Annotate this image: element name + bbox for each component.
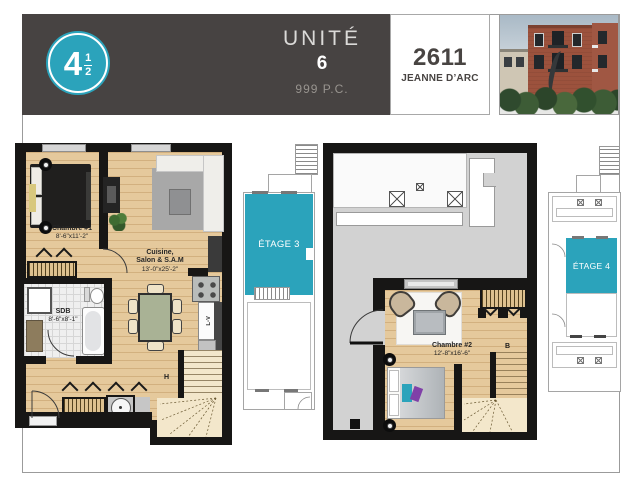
entry-step (29, 416, 57, 426)
vanity (26, 320, 43, 352)
fridge (208, 236, 222, 272)
keyplan-window-tick (572, 236, 584, 239)
ottoman (169, 189, 191, 215)
skylight-icon (577, 199, 584, 206)
dining-chair (147, 341, 164, 351)
unit-area: 999 P.C. (295, 82, 348, 96)
dining-table (138, 293, 172, 342)
bed-2-pillow (389, 394, 399, 416)
stairs-down-label: B (505, 343, 510, 350)
stair-winder (157, 398, 222, 437)
unit-type-badge: 4 1 2 (48, 33, 108, 93)
dishwasher-label: L-V (206, 316, 212, 326)
keyplan4-parapet (556, 346, 613, 355)
photo-window (598, 55, 607, 68)
plan4-wall-right (527, 143, 537, 440)
keyplan-window-tick (255, 389, 269, 392)
stairs-up (184, 350, 222, 400)
unit-label: UNITÉ (283, 27, 361, 51)
stair-wall (454, 364, 462, 432)
room-label-cuisine: Cuisine, Salon & S.A.M 13'-0"x25'-2" (120, 249, 200, 273)
photo-window (534, 55, 544, 69)
skylight-icon (447, 191, 463, 207)
closet-1 (27, 261, 77, 278)
stairs-down (496, 352, 527, 400)
keyplan3-label: ÉTAGE 3 (258, 239, 300, 250)
closet-2-wall (520, 308, 527, 318)
pot-light-icon (383, 353, 396, 366)
photo-balcony (592, 45, 598, 48)
keyplan4-lower-room (566, 293, 617, 337)
keyplan-window-tick (594, 335, 606, 338)
badge-fraction: 1 2 (84, 52, 92, 77)
balcony-sill-glass (408, 282, 454, 286)
keyplan3-highlight: ÉTAGE 3 (245, 194, 313, 295)
keyplan-window-tick (252, 191, 268, 194)
pot-light-icon (39, 158, 52, 171)
skylight-icon (595, 199, 602, 206)
sdb-bottom-wall (15, 356, 46, 364)
bed-2-pillow (389, 370, 399, 392)
keyplan4-parapet (556, 208, 613, 217)
sofa-chaise (203, 155, 224, 232)
pot-light-icon (383, 419, 396, 432)
keyplan4-highlight: ÉTAGE 4 (566, 238, 617, 293)
roof-parapet-notch (483, 173, 496, 187)
photo-bushes (500, 87, 619, 115)
window-sill (42, 144, 86, 152)
keyplan3-ext-stairs (295, 144, 318, 175)
skylight-icon (577, 357, 584, 364)
sdb-bottom-wall (76, 356, 112, 364)
photo-window (572, 55, 582, 69)
dining-chair (172, 319, 182, 334)
stairs-up-label: H (164, 374, 169, 381)
photo-balcony (548, 45, 568, 48)
unit-number: 6 (317, 53, 328, 75)
photo-window (504, 57, 512, 67)
photo-window (516, 57, 524, 67)
stair-winder (462, 398, 527, 432)
address-street: JEANNE D’ARC (401, 73, 478, 84)
keyplan3-rear-bump (284, 392, 312, 410)
badge-whole-number: 4 (64, 47, 82, 80)
keyplan-window-tick (281, 191, 297, 194)
unit-info: UNITÉ 6 999 P.C. (258, 27, 386, 96)
bed-1-throw (29, 184, 36, 212)
keyplan-window-tick (596, 236, 608, 239)
roof-parapet (469, 158, 495, 227)
keyplan3-notch (306, 248, 314, 260)
building-photo (499, 14, 619, 115)
room-label-chambre1: Chambre #1 8'-6"x11'-2" (36, 225, 108, 241)
keyplan3-lower-room (247, 302, 311, 390)
room-label-sdb: SDB 8'-6"x8'-1" (42, 308, 84, 324)
photo-window (572, 33, 582, 47)
keyplan4-ext-stairs (599, 146, 620, 175)
plan4-wall-top (323, 143, 537, 153)
keyplan4-vestibule (576, 175, 601, 193)
sdb-right-wall (104, 284, 112, 358)
dining-chair (128, 319, 138, 334)
coffee-table-top (416, 313, 443, 332)
floorplan-sheet: 4 1 2 UNITÉ 6 999 P.C. 2611 JEANNE D’ARC (0, 0, 640, 480)
toilet-bowl (90, 288, 104, 304)
bedroom2-door-opening (373, 311, 385, 345)
terrace-post (350, 419, 360, 429)
roof-drain-icon (416, 183, 424, 191)
roof-parapet (336, 212, 463, 226)
room-label-chambre2: Chambre #2 12'-8"x16'-6" (410, 342, 494, 358)
tv-screen (107, 186, 116, 203)
bed-1-bench (86, 172, 91, 220)
dining-chair (128, 299, 138, 314)
skylight-icon (389, 191, 405, 207)
keyplan3-stairs (254, 287, 290, 300)
bathtub-basin (85, 311, 101, 351)
skylight-icon (595, 357, 602, 364)
photo-window (534, 33, 544, 47)
stove (192, 276, 220, 302)
photo-balcony (592, 69, 598, 72)
dining-chair (172, 299, 182, 314)
keyplan-window-tick (570, 335, 582, 338)
photo-window (598, 31, 607, 44)
plan4-wall-left (323, 143, 333, 440)
window-sill (131, 144, 171, 152)
keyplan4-label: ÉTAGE 4 (573, 261, 610, 271)
address-box: 2611 JEANNE D’ARC (390, 14, 490, 115)
plant (109, 213, 127, 231)
address-number: 2611 (413, 46, 467, 70)
